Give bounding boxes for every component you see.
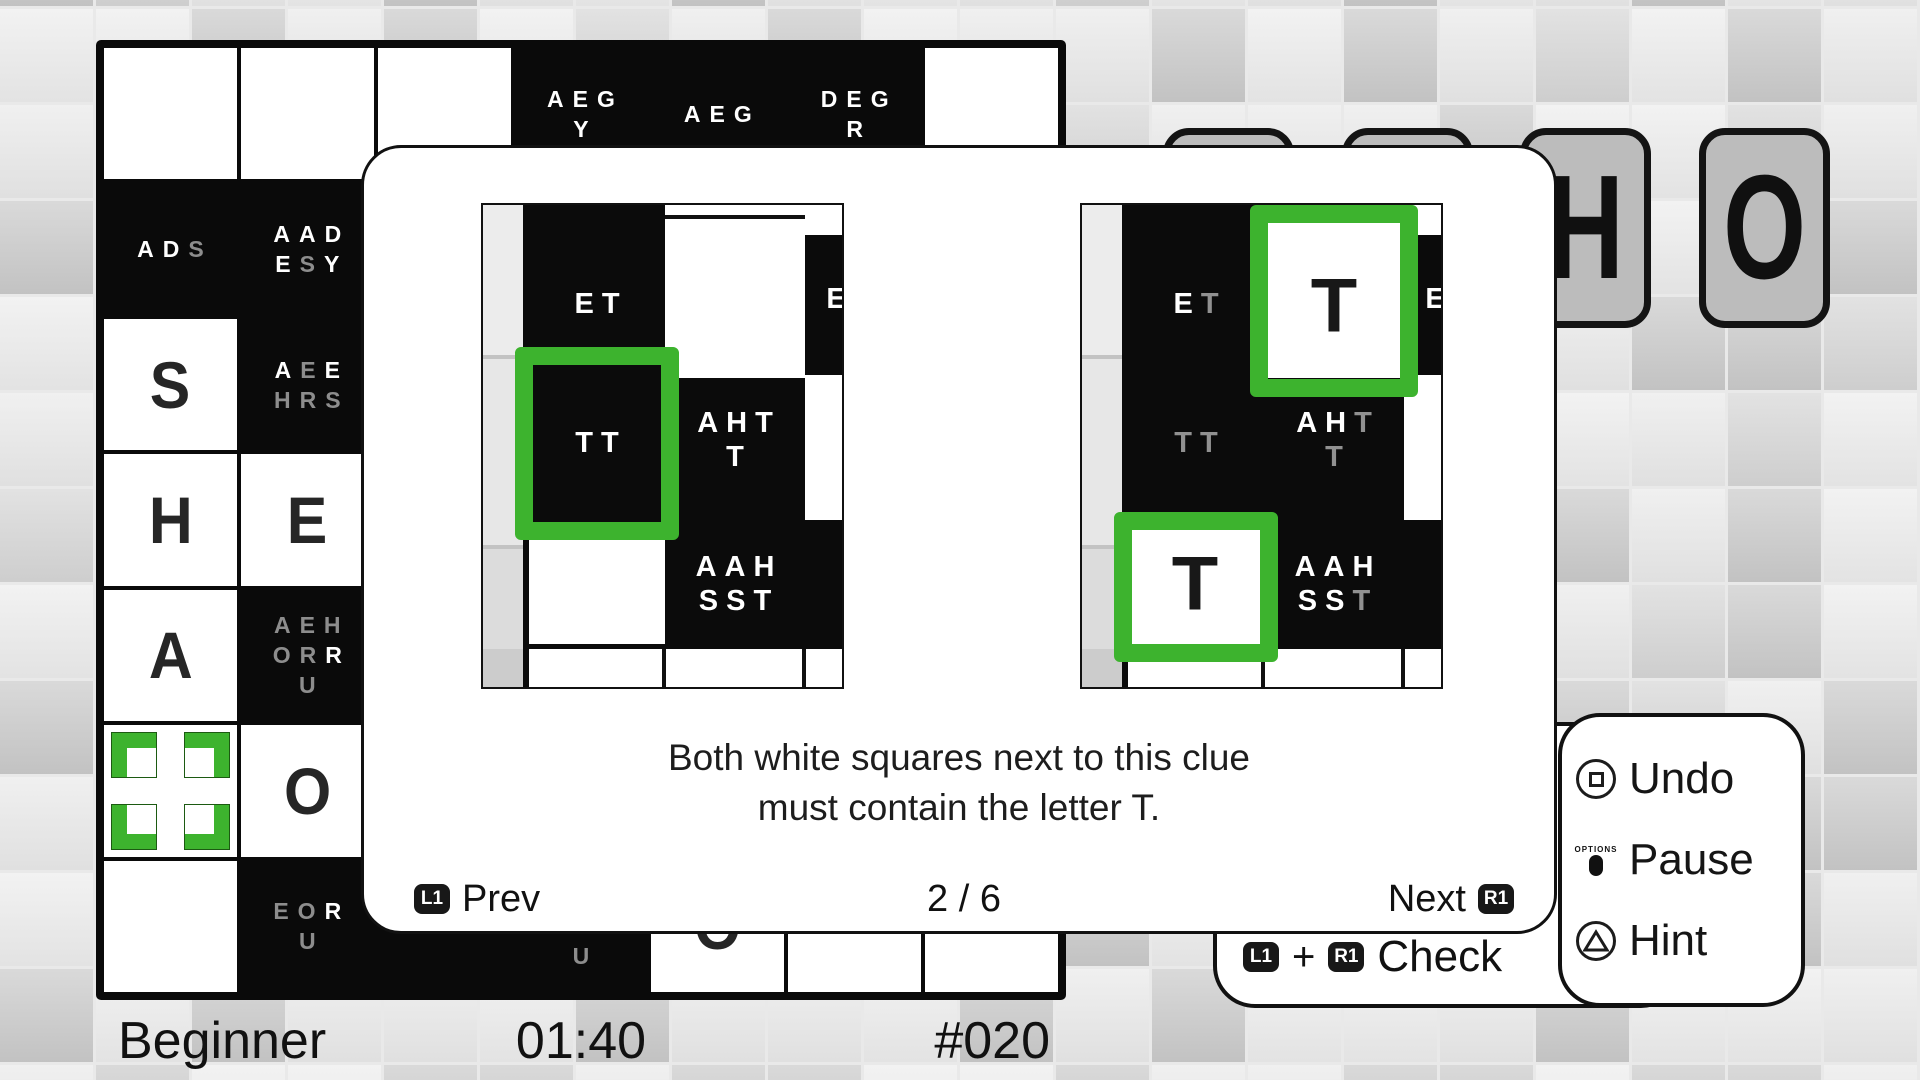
scene-rect: [529, 649, 844, 689]
r1-badge: R1: [1328, 942, 1364, 972]
timer: 01:40: [96, 1011, 1066, 1071]
clue-letter: E: [573, 84, 588, 114]
l1-badge: L1: [1243, 942, 1279, 972]
undo-button[interactable]: Undo: [1576, 754, 1801, 804]
background-square: [1344, 9, 1437, 102]
background-square: [1728, 393, 1821, 486]
background-square: [1728, 1065, 1821, 1080]
background-square: [1824, 681, 1917, 774]
selected-cell[interactable]: [104, 725, 237, 856]
clue-letter: A: [1324, 550, 1345, 584]
background-square: [960, 0, 1053, 6]
background-square: [0, 873, 93, 966]
clue-letter: E: [300, 355, 315, 385]
scene-rect: [529, 526, 665, 648]
background-square: [0, 1065, 93, 1080]
background-square: [0, 969, 93, 1062]
scene-clue: AHTT: [693, 406, 777, 474]
tutorial-nav: L1 Prev 2 / 6 Next R1: [414, 877, 1514, 921]
clue-letter: G: [597, 84, 615, 114]
background-square: [1632, 0, 1725, 6]
background-square: [1824, 105, 1917, 198]
background-square: [1824, 393, 1917, 486]
clue-letter: A: [697, 406, 718, 440]
background-square: [1152, 9, 1245, 102]
scene-clue: ET: [1169, 287, 1222, 321]
background-square: [1824, 0, 1917, 6]
clue-letter: G: [734, 99, 752, 129]
background-square: [1728, 9, 1821, 102]
green-highlight-box: [1114, 512, 1278, 662]
clue-letter: E: [826, 282, 844, 316]
clue-letter: A: [273, 219, 290, 249]
tutorial-modal: ETTTAHTTAAHSSTE ETTTAHTTAAHSSTETT Both w…: [361, 145, 1557, 934]
scene-rect: [805, 375, 844, 520]
clue-letter: U: [573, 941, 590, 971]
clue-letter: H: [1325, 406, 1346, 440]
scene-clue: TT: [1170, 426, 1221, 460]
background-square: [0, 393, 93, 486]
board-cell[interactable]: [241, 48, 374, 179]
scene-clue: AAHSST: [692, 550, 779, 618]
pause-button[interactable]: OPTIONS Pause: [1576, 835, 1801, 885]
scene-clue: E: [1421, 282, 1443, 316]
background-square: [864, 0, 957, 6]
status-bar: Beginner 01:40 #020: [96, 1008, 1066, 1074]
tutorial-caption: Both white squares next to this clue mus…: [364, 733, 1554, 833]
background-square: [1632, 585, 1725, 678]
background-square: [1536, 0, 1629, 6]
background-square: [1056, 1065, 1149, 1080]
check-button[interactable]: L1 + R1 Check: [1243, 932, 1502, 982]
puzzle-number: #020: [934, 1011, 1050, 1071]
clue-letter: E: [846, 84, 861, 114]
clue-letter: H: [753, 550, 774, 584]
selection-bracket: [112, 733, 156, 777]
check-label: Check: [1377, 932, 1502, 982]
background-square: [0, 777, 93, 870]
clue-letter: T: [726, 440, 744, 474]
clue-letter: H: [324, 610, 341, 640]
tile-letter: O: [1723, 143, 1806, 313]
clue-letter: T: [753, 584, 771, 618]
board-cell[interactable]: E: [241, 454, 374, 585]
background-square: [0, 9, 93, 102]
scene-rect: [662, 649, 666, 689]
background-square: [1344, 1065, 1437, 1080]
background-square: [1824, 201, 1917, 294]
background-square: [1440, 0, 1533, 6]
tile-letter: H: [1547, 143, 1624, 313]
background-square: [1152, 0, 1245, 6]
clue-letter: A: [275, 355, 292, 385]
background-square: [0, 201, 93, 294]
clue-letter: S: [1325, 584, 1344, 618]
clue-letter: A: [274, 610, 291, 640]
background-square: [768, 0, 861, 6]
clue-cell: AADESY: [241, 183, 374, 314]
clue-letter: T: [1174, 426, 1192, 460]
plus-sign: +: [1292, 935, 1315, 980]
clue-cell: EORU: [241, 861, 374, 992]
clue-letter: Y: [324, 249, 339, 279]
clue-letter: T: [1352, 584, 1370, 618]
board-cell[interactable]: S: [104, 319, 237, 450]
clue-letter: E: [275, 249, 290, 279]
clue-letter: A: [696, 550, 717, 584]
background-square: [1248, 0, 1341, 6]
clue-letter: H: [274, 385, 291, 415]
clue-letter: G: [871, 84, 889, 114]
clue-letter: R: [325, 640, 342, 670]
background-square: [1824, 585, 1917, 678]
clue-letter: H: [726, 406, 747, 440]
scene-rect: [805, 520, 844, 648]
clue-letter: S: [699, 584, 718, 618]
triangle-icon: [1576, 921, 1616, 961]
clue-letter: U: [299, 670, 316, 700]
background-square: [0, 297, 93, 390]
background-square: [1824, 9, 1917, 102]
background-square: [1056, 969, 1149, 1062]
clue-cell: AEHORRU: [241, 590, 374, 721]
scene-clue: AAHSST: [1291, 550, 1378, 618]
clue-letter: D: [821, 84, 838, 114]
clue-letter: Y: [573, 114, 588, 144]
background-square: [1440, 9, 1533, 102]
scene-rect: [483, 549, 523, 649]
board-cell[interactable]: A: [104, 590, 237, 721]
background-square: [1344, 0, 1437, 6]
clue-letter: E: [1173, 287, 1192, 321]
background-square: [0, 585, 93, 678]
board-cell[interactable]: [104, 861, 237, 992]
background-square: [0, 105, 93, 198]
scene-rect: [483, 649, 523, 689]
background-square: [192, 0, 285, 6]
background-square: [1824, 489, 1917, 582]
background-square: [672, 0, 765, 6]
hint-label: Hint: [1629, 916, 1707, 966]
background-square: [1824, 297, 1917, 390]
clue-letter: A: [1295, 550, 1316, 584]
green-highlight-box: [515, 347, 679, 540]
scene-clue: ET: [570, 287, 623, 321]
hint-button[interactable]: Hint: [1576, 916, 1801, 966]
clue-letter: T: [755, 406, 773, 440]
board-cell[interactable]: O: [241, 725, 374, 856]
background-square: [1536, 1065, 1629, 1080]
background-square: [1824, 1065, 1917, 1080]
clue-letter: S: [188, 234, 203, 264]
background-square: [1632, 489, 1725, 582]
background-square: [1632, 393, 1725, 486]
background-square: [288, 0, 381, 6]
clue-letter: E: [273, 896, 288, 926]
selection-bracket: [112, 805, 156, 849]
clue-letter: T: [1325, 440, 1343, 474]
clue-letter: T: [1354, 406, 1372, 440]
scene-rect: [665, 215, 805, 219]
cell-letter: S: [150, 347, 191, 423]
clue-letter: A: [1296, 406, 1317, 440]
background-square: [1056, 9, 1149, 102]
background-square: [96, 0, 189, 6]
clue-letter: A: [137, 234, 154, 264]
background-square: [1632, 9, 1725, 102]
tutorial-image-clue-highlight: ETTTAHTTAAHSSTE: [481, 203, 844, 689]
clue-letter: E: [1425, 282, 1443, 316]
clue-letter: O: [298, 896, 316, 926]
clue-cell: AEEHRS: [241, 319, 374, 450]
clue-letter: R: [325, 896, 342, 926]
page-indicator: 2 / 6: [414, 878, 1514, 921]
background-square: [576, 0, 669, 6]
selection-bracket: [185, 805, 229, 849]
clue-letter: S: [325, 385, 340, 415]
game-screen: AEGYAEGDEGRADSAADESYSAEEHRSHEAAEHORRUOEO…: [0, 0, 1920, 1080]
board-cell[interactable]: H: [104, 454, 237, 585]
square-icon: [1576, 759, 1616, 799]
options-icon: OPTIONS: [1576, 845, 1616, 876]
clue-letter: R: [846, 114, 863, 144]
clue-letter: T: [1201, 287, 1219, 321]
clue-letter: U: [299, 926, 316, 956]
cell-letter: E: [287, 482, 328, 558]
background-square: [1824, 777, 1917, 870]
clue-letter: S: [300, 249, 315, 279]
background-square: [0, 489, 93, 582]
background-square: [0, 681, 93, 774]
background-square: [384, 0, 477, 6]
cell-letter: A: [148, 617, 192, 693]
clue-letter: A: [547, 84, 564, 114]
scene-rect: [1401, 649, 1405, 689]
clue-letter: H: [1352, 550, 1373, 584]
scene-rect: [805, 205, 844, 235]
scene-rect: [1404, 520, 1443, 648]
clue-letter: T: [1200, 426, 1218, 460]
clue-letter: T: [602, 287, 620, 321]
background-square: [1824, 873, 1917, 966]
action-panel: Undo OPTIONS Pause Hint: [1558, 713, 1805, 1007]
background-square: [0, 0, 93, 6]
clue-letter: A: [684, 99, 701, 129]
background-square: [1536, 9, 1629, 102]
green-highlight-box: [1250, 205, 1418, 397]
selection-bracket: [185, 733, 229, 777]
clue-cell: ADS: [104, 183, 237, 314]
clue-letter: S: [726, 584, 745, 618]
clue-letter: O: [273, 640, 291, 670]
cell-letter: O: [284, 753, 331, 829]
background-square: [1440, 1065, 1533, 1080]
background-square: [1056, 0, 1149, 6]
clue-letter: R: [300, 385, 317, 415]
background-square: [480, 0, 573, 6]
clue-letter: E: [710, 99, 725, 129]
undo-label: Undo: [1629, 754, 1734, 804]
clue-letter: E: [325, 355, 340, 385]
scene-clue: AHTT: [1292, 406, 1376, 474]
background-square: [1248, 9, 1341, 102]
clue-letter: A: [725, 550, 746, 584]
pause-label: Pause: [1629, 835, 1754, 885]
clue-letter: E: [300, 610, 315, 640]
board-cell[interactable]: [104, 48, 237, 179]
clue-letter: R: [300, 640, 317, 670]
clue-letter: D: [325, 219, 342, 249]
clue-letter: S: [1298, 584, 1317, 618]
background-square: [1152, 1065, 1245, 1080]
clue-letter: D: [163, 234, 180, 264]
letter-tile[interactable]: O: [1699, 128, 1830, 328]
cell-letter: H: [148, 482, 192, 558]
scene-rect: [665, 205, 805, 385]
scene-clue: E: [822, 282, 844, 316]
clue-letter: A: [299, 219, 316, 249]
background-square: [1728, 489, 1821, 582]
background-square: [1632, 1065, 1725, 1080]
background-square: [1728, 0, 1821, 6]
scene-rect: [802, 649, 806, 689]
tutorial-image-answer-highlight: ETTTAHTTAAHSSTETT: [1080, 203, 1443, 689]
background-square: [1728, 585, 1821, 678]
background-square: [1824, 969, 1917, 1062]
background-square: [1248, 1065, 1341, 1080]
clue-letter: E: [574, 287, 593, 321]
